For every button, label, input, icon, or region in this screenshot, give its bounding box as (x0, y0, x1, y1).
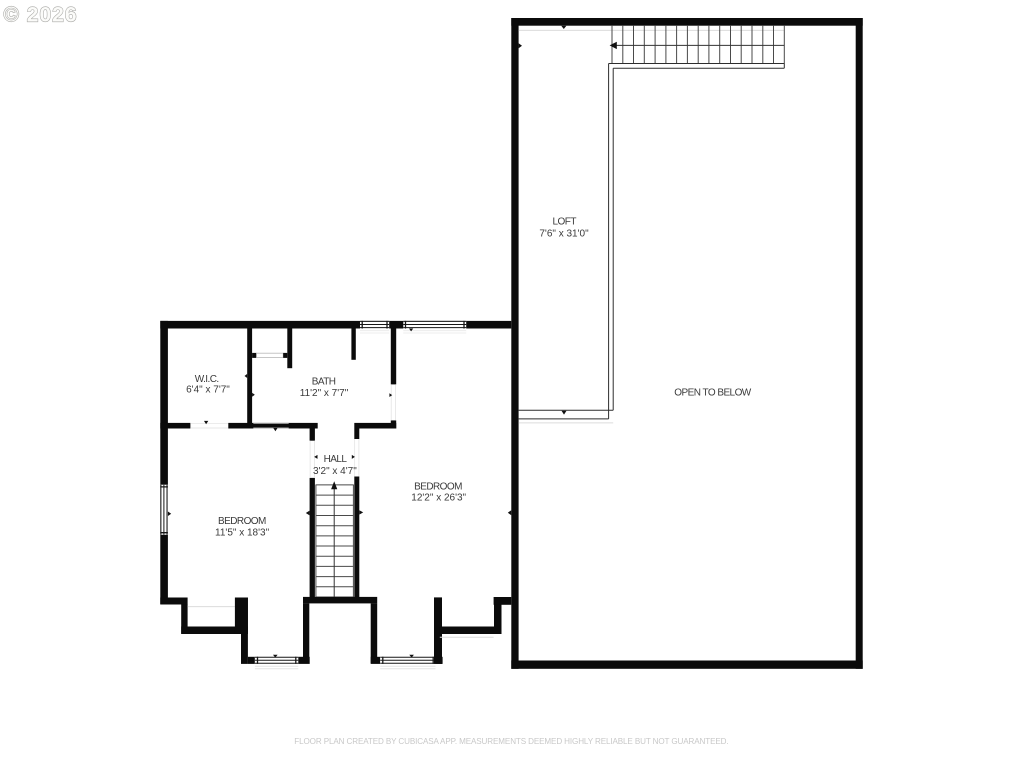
svg-text:3'2" x 4'7": 3'2" x 4'7" (313, 466, 357, 477)
svg-text:FLOOR PLAN CREATED BY CUBICASA: FLOOR PLAN CREATED BY CUBICASA APP. MEAS… (294, 737, 728, 746)
svg-text:12'2" x 26'3": 12'2" x 26'3" (411, 493, 466, 504)
svg-text:BEDROOM: BEDROOM (218, 516, 266, 527)
svg-text:7'6" x 31'0": 7'6" x 31'0" (539, 229, 589, 240)
svg-text:11'5" x 18'3": 11'5" x 18'3" (215, 528, 270, 539)
svg-text:BEDROOM: BEDROOM (414, 482, 462, 493)
svg-text:OPEN TO BELOW: OPEN TO BELOW (674, 388, 752, 399)
svg-text:LOFT: LOFT (553, 217, 577, 228)
svg-text:6'4" x 7'7": 6'4" x 7'7" (186, 385, 230, 396)
svg-text:BATH: BATH (312, 376, 336, 387)
svg-text:11'2" x 7'7": 11'2" x 7'7" (300, 388, 349, 399)
svg-text:W.I.C.: W.I.C. (195, 374, 219, 385)
svg-text:© 2026: © 2026 (4, 4, 78, 27)
svg-text:HALL: HALL (324, 454, 348, 465)
